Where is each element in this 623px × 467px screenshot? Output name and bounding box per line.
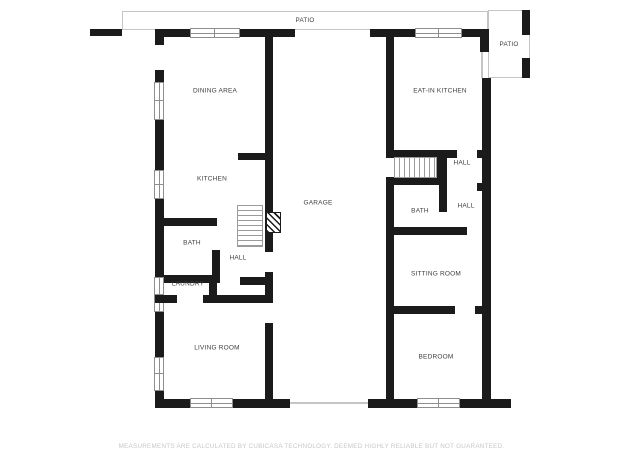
interior-wall-segment bbox=[477, 150, 482, 158]
room-label-kitchen: KITCHEN bbox=[197, 176, 227, 183]
window bbox=[154, 82, 164, 120]
interior-wall-segment bbox=[386, 37, 394, 158]
garage-door-line bbox=[290, 402, 368, 404]
exterior-wall-segment bbox=[240, 29, 295, 37]
room-label-bedroom: BEDROOM bbox=[419, 354, 454, 361]
exterior-wall-segment bbox=[480, 29, 489, 52]
patio-door-line bbox=[481, 52, 483, 78]
room-label-patio-top: PATIO bbox=[296, 17, 315, 24]
interior-wall-segment bbox=[164, 218, 217, 226]
window bbox=[154, 357, 164, 391]
interior-wall-segment bbox=[155, 295, 177, 303]
interior-wall-segment bbox=[238, 153, 265, 160]
floorplan-canvas: PATIO PATIO bbox=[0, 0, 623, 467]
room-label-patio-right: PATIO bbox=[500, 41, 519, 48]
under-stair-hatch bbox=[266, 212, 281, 233]
exterior-wall-segment bbox=[155, 70, 164, 82]
exterior-wall-segment bbox=[155, 120, 164, 170]
room-label-eat-in-kitchen: EAT-IN KITCHEN bbox=[413, 88, 467, 95]
room-label-dining-area: DINING AREA bbox=[193, 88, 237, 95]
exterior-wall-segment bbox=[233, 399, 290, 408]
stairs-right bbox=[394, 157, 437, 178]
window bbox=[154, 170, 164, 199]
interior-wall-segment bbox=[439, 185, 447, 212]
interior-wall-segment bbox=[386, 306, 455, 314]
room-label-living-room: LIVING ROOM bbox=[194, 345, 240, 352]
exterior-wall-segment bbox=[155, 312, 164, 357]
interior-wall-segment bbox=[212, 250, 220, 283]
window bbox=[190, 398, 233, 408]
interior-wall-segment bbox=[240, 277, 265, 285]
interior-wall-segment bbox=[203, 295, 273, 303]
interior-wall-segment bbox=[394, 227, 467, 235]
room-label-laundry: LAUNDRY bbox=[172, 281, 204, 288]
exterior-wall-segment bbox=[370, 29, 415, 37]
window bbox=[190, 28, 240, 38]
exterior-wall-segment bbox=[155, 399, 190, 408]
disclaimer-text: MEASUREMENTS ARE CALCULATED BY CUBICASA … bbox=[0, 443, 623, 450]
stairs-left bbox=[237, 205, 263, 247]
exterior-wall-segment bbox=[482, 78, 491, 408]
interior-wall-segment bbox=[386, 177, 394, 399]
window bbox=[417, 398, 460, 408]
exterior-wall-segment bbox=[155, 29, 164, 45]
interior-wall-segment bbox=[394, 177, 447, 185]
patio-wall-stub bbox=[522, 58, 530, 78]
room-label-sitting-room: SITTING ROOM bbox=[411, 271, 461, 278]
room-label-bath-left: BATH bbox=[183, 240, 201, 247]
room-label-bath-right: BATH bbox=[411, 208, 429, 215]
interior-wall-segment bbox=[209, 283, 217, 295]
room-label-hall-lower: HALL bbox=[457, 203, 474, 210]
interior-wall-segment bbox=[477, 183, 482, 191]
room-label-hall-left: HALL bbox=[229, 255, 246, 262]
exterior-wall-segment bbox=[90, 29, 122, 36]
window bbox=[415, 28, 462, 38]
room-label-garage: GARAGE bbox=[303, 200, 332, 207]
exterior-wall-segment bbox=[155, 199, 164, 277]
interior-wall-segment bbox=[475, 306, 482, 314]
interior-wall-segment bbox=[265, 323, 273, 407]
exterior-wall-segment bbox=[368, 399, 417, 408]
room-label-hall-upper: HALL bbox=[453, 160, 470, 167]
patio-wall-stub bbox=[522, 10, 530, 35]
